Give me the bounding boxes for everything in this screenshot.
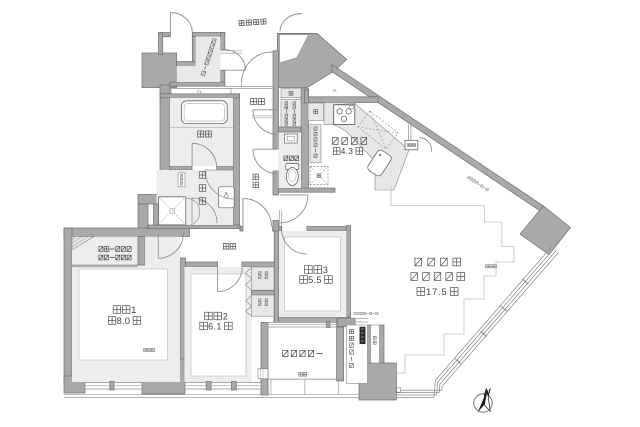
svg-text:8.0: 8.0: [117, 316, 131, 326]
svg-text:1: 1: [131, 305, 137, 315]
svg-text:FL: FL: [198, 90, 202, 94]
svg-text:5.5: 5.5: [308, 275, 322, 285]
svg-text:2: 2: [223, 311, 229, 321]
svg-text:3: 3: [323, 265, 329, 275]
svg-text:FL: FL: [333, 89, 337, 93]
svg-text:4.3: 4.3: [341, 147, 354, 156]
svg-text:6.1: 6.1: [208, 321, 222, 331]
svg-text:17.5: 17.5: [426, 286, 447, 297]
